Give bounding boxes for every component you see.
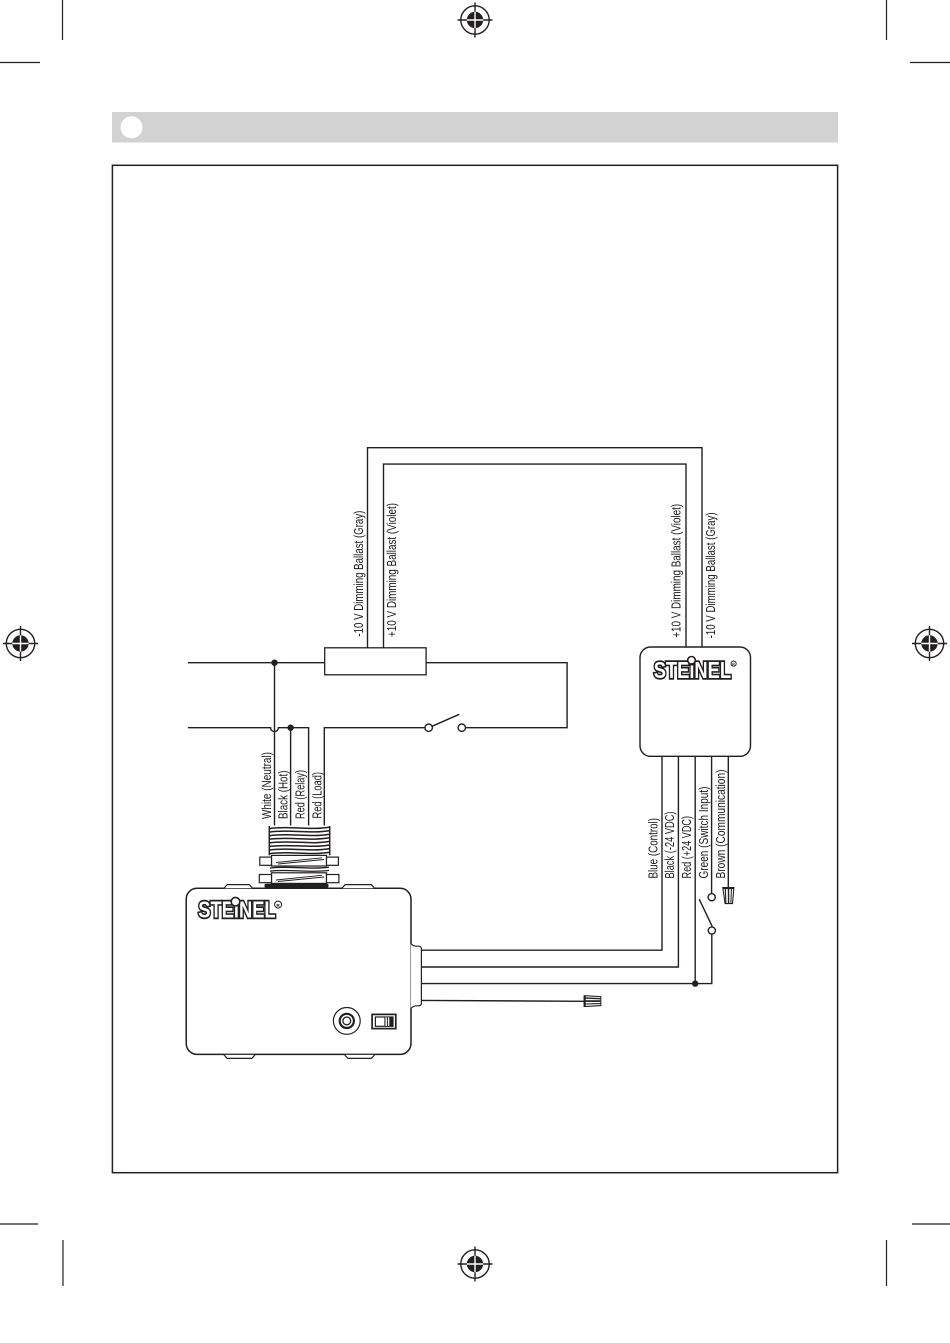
svg-text:White (Neutral): White (Neutral) (259, 752, 274, 819)
svg-text:Black (Hot): Black (Hot) (276, 771, 291, 820)
svg-text:Red (Load): Red (Load) (310, 772, 325, 819)
svg-text:Blue (Control): Blue (Control) (646, 818, 661, 879)
svg-text:-10 V Dimming Ballast (Gray): -10 V Dimming Ballast (Gray) (703, 512, 718, 638)
svg-text:Green (Switch Input): Green (Switch Input) (696, 787, 711, 879)
svg-text:Black (-24 VDC): Black (-24 VDC) (662, 812, 677, 879)
svg-text:R: R (732, 662, 735, 666)
svg-text:-10 V Dimming Ballast (Gray): -10 V Dimming Ballast (Gray) (351, 511, 366, 637)
svg-text:+10 V Dimming Ballast (Violet): +10 V Dimming Ballast (Violet) (384, 503, 399, 637)
svg-text:Red (Relay): Red (Relay) (293, 770, 308, 819)
svg-text:Red (+24 VDC): Red (+24 VDC) (679, 816, 694, 879)
svg-text:R: R (276, 903, 280, 909)
svg-text:+10 V Dimming Ballast (Violet): +10 V Dimming Ballast (Violet) (669, 504, 684, 638)
svg-text:Brown (Communication): Brown (Communication) (713, 770, 728, 879)
